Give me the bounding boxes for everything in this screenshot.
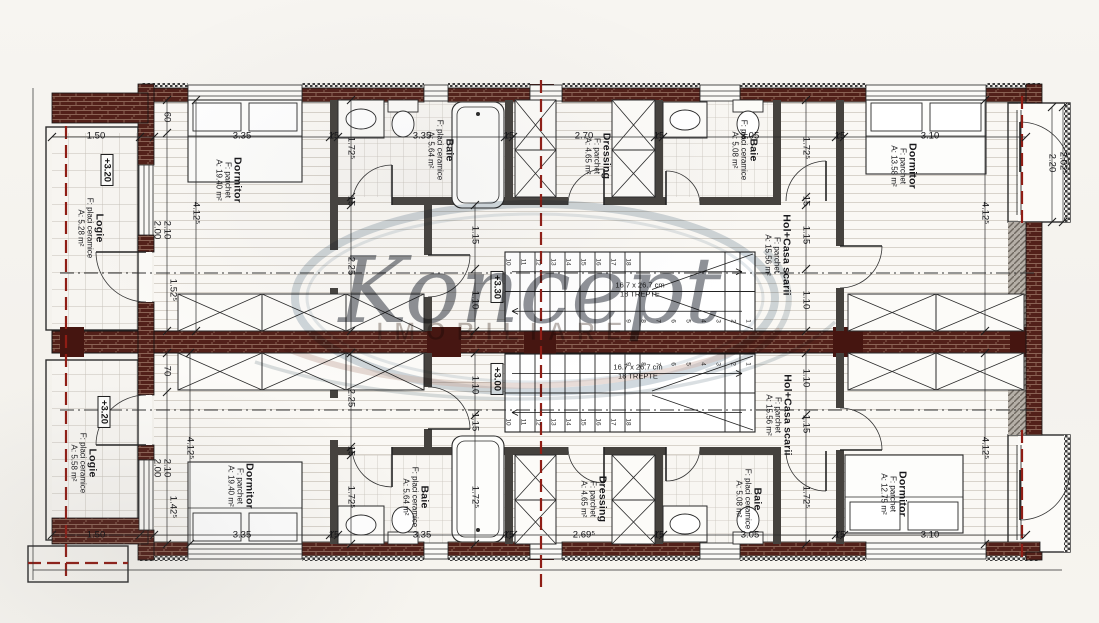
dimension-label: 1.50 bbox=[87, 530, 106, 541]
tread-number: 7 bbox=[655, 319, 662, 323]
tread-number: 2 bbox=[730, 362, 737, 366]
tread-number: 3 bbox=[715, 362, 722, 366]
room-label-baie-top-1: BaieF: placi ceramiceA: 5.64 m² bbox=[426, 120, 455, 180]
tread-number: 9 bbox=[625, 362, 632, 366]
dimension-label: 15 bbox=[504, 530, 515, 541]
dimension-label: 4.12⁵ bbox=[980, 437, 991, 459]
dimension-label: 2.10 bbox=[162, 221, 173, 240]
level-marker: +3.20 bbox=[98, 396, 111, 428]
room-label-dressing-bottom: DressingF: parchetA: 4.65 m² bbox=[579, 476, 608, 523]
dimension-label: 15 bbox=[835, 131, 846, 142]
tread-number: 11 bbox=[520, 259, 527, 266]
floor-plan: LogieF: placi ceramiceA: 5.28 m²Dormitor… bbox=[0, 0, 1099, 623]
tread-number: 6 bbox=[670, 362, 677, 366]
tread-number: 2 bbox=[730, 319, 737, 323]
dimension-label: 1.10 bbox=[801, 369, 812, 388]
dimension-label: 15 bbox=[654, 530, 665, 541]
tread-number: 16 bbox=[595, 258, 602, 265]
level-marker: +3.30 bbox=[491, 271, 504, 303]
dimension-label: 70 bbox=[162, 366, 173, 377]
tread-number: 11 bbox=[520, 419, 527, 426]
tread-number: 12 bbox=[535, 418, 542, 425]
dimension-label: 1.72⁵ bbox=[470, 486, 481, 508]
tread-number: 8 bbox=[640, 362, 647, 366]
dimension-label: 2.69⁵ bbox=[573, 530, 595, 541]
room-label-baie-bottom-2: BaieF: placi ceramiceA: 5.08 m² bbox=[734, 469, 763, 529]
dimension-label: 2.10 bbox=[162, 459, 173, 478]
tread-number: 14 bbox=[565, 258, 572, 265]
dimension-label: 3.35 bbox=[233, 530, 252, 541]
dimension-label: 15 bbox=[801, 196, 812, 207]
dimension-label: 4.12⁵ bbox=[185, 437, 196, 459]
room-label-baie-bottom-1: BaieF: placi ceramiceA: 5.64 m² bbox=[401, 467, 430, 527]
tread-number: 14 bbox=[565, 418, 572, 425]
stair-note: 16.7 x 26.7 cm18 TREPTE bbox=[615, 281, 664, 300]
dimension-label: 15 bbox=[346, 196, 357, 207]
room-label-dormitor-bottom-right: DormitorF: parchetA: 12.75 m² bbox=[879, 471, 908, 517]
dimension-label: 1.15 bbox=[470, 226, 481, 245]
tread-number: 16 bbox=[595, 418, 602, 425]
tread-number: 17 bbox=[610, 258, 617, 265]
room-label-dormitor-top-left: DormitorF: parchetA: 19.40 m² bbox=[214, 157, 243, 203]
tread-number: 1 bbox=[745, 362, 752, 366]
dimension-label: 4.12⁵ bbox=[980, 202, 991, 224]
tread-number: 18 bbox=[625, 258, 632, 265]
dimension-label: 15 bbox=[835, 530, 846, 541]
tread-number: 15 bbox=[580, 258, 587, 265]
dimension-label: 15 bbox=[346, 446, 357, 457]
tread-number: 3 bbox=[715, 319, 722, 323]
dimension-label: 2.70 bbox=[575, 131, 594, 142]
dimension-label: 3.05 bbox=[741, 131, 760, 142]
dimension-label: 1.52⁵ bbox=[168, 279, 179, 301]
annotation-layer: LogieF: placi ceramiceA: 5.28 m²Dormitor… bbox=[0, 0, 1099, 623]
dimension-label: 2.02⁵ bbox=[1058, 152, 1069, 174]
room-label-baie-top-2: BaieF: placi ceramiceA: 5.08 m² bbox=[730, 120, 759, 180]
tread-number: 5 bbox=[685, 319, 692, 323]
dimension-label: 1.72⁵ bbox=[346, 137, 357, 159]
dimension-label: 3.35 bbox=[413, 131, 432, 142]
dimension-label: 1.72⁵ bbox=[801, 137, 812, 159]
room-label-logie-bottom: LogieF: placi ceramiceA: 5.58 m² bbox=[69, 433, 98, 493]
dimension-label: 3.35 bbox=[413, 530, 432, 541]
tread-number: 4 bbox=[700, 319, 707, 323]
dimension-label: 1.15 bbox=[470, 413, 481, 432]
room-label-dormitor-top-right: DormitorF: parchetA: 13.58 m² bbox=[889, 143, 918, 189]
tread-number: 1 bbox=[745, 319, 752, 323]
dimension-label: 15 bbox=[329, 530, 340, 541]
dimension-label: 1.15 bbox=[801, 226, 812, 245]
dimension-label: 1.15 bbox=[801, 415, 812, 434]
dimension-label: 2.25 bbox=[346, 257, 357, 276]
tread-number: 12 bbox=[535, 258, 542, 265]
tread-number: 9 bbox=[625, 319, 632, 323]
dimension-label: 15 bbox=[329, 131, 340, 142]
dimension-label: 4.12⁵ bbox=[191, 202, 202, 224]
tread-number: 8 bbox=[640, 319, 647, 323]
tread-number: 10 bbox=[505, 258, 512, 265]
dimension-label: 1.10 bbox=[470, 291, 481, 310]
dimension-label: 60 bbox=[162, 112, 173, 123]
dimension-label: 1.72⁵ bbox=[801, 486, 812, 508]
tread-number: 13 bbox=[550, 258, 557, 265]
tread-number: 15 bbox=[580, 418, 587, 425]
tread-number: 4 bbox=[700, 362, 707, 366]
dimension-label: 15 bbox=[654, 131, 665, 142]
dimension-label: 3.35 bbox=[233, 131, 252, 142]
tread-number: 10 bbox=[505, 418, 512, 425]
room-label-dormitor-bottom-left: DormitorF: parchetA: 19.40 m² bbox=[226, 463, 255, 509]
tread-number: 6 bbox=[670, 319, 677, 323]
tread-number: 13 bbox=[550, 418, 557, 425]
level-marker: +3.00 bbox=[491, 363, 504, 395]
level-marker: +3.20 bbox=[101, 154, 114, 186]
dimension-label: 2.20 bbox=[1047, 154, 1058, 173]
dimension-label: 1.72⁵ bbox=[346, 486, 357, 508]
dimension-label: 15 bbox=[504, 131, 515, 142]
dimension-label: 1.10 bbox=[470, 376, 481, 395]
dimension-label: 1.10 bbox=[801, 291, 812, 310]
dimension-label: 1.42⁵ bbox=[168, 496, 179, 518]
tread-number: 5 bbox=[685, 362, 692, 366]
dimension-label: 2.25 bbox=[346, 389, 357, 408]
dimension-label: 1.50 bbox=[87, 131, 106, 142]
tread-number: 7 bbox=[655, 362, 662, 366]
dimension-label: 3.10 bbox=[921, 131, 940, 142]
room-label-hol-bottom: Hol+Casa scariiF: parchetA: 15.56 m² bbox=[764, 374, 793, 456]
room-label-logie-top: LogieF: placi ceramiceA: 5.28 m² bbox=[76, 198, 105, 258]
room-label-hol-top: Hol+Casa scariiF: parchetA: 15.56 m² bbox=[763, 214, 792, 296]
dimension-label: 3.05 bbox=[741, 530, 760, 541]
tread-number: 18 bbox=[625, 418, 632, 425]
tread-number: 17 bbox=[610, 418, 617, 425]
dimension-label: 3.10 bbox=[921, 530, 940, 541]
